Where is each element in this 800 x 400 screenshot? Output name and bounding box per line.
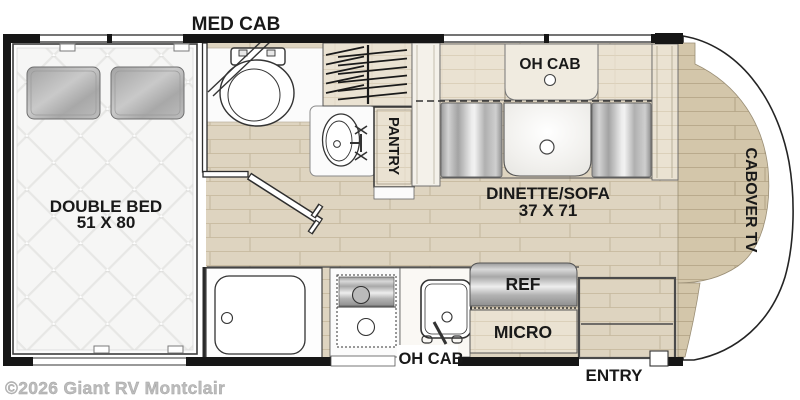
- microwave: MICRO: [470, 310, 577, 353]
- cabover-tv-label: CABOVER TV: [742, 148, 759, 253]
- floorplan-canvas: DOUBLE BED 51 X 80: [0, 0, 800, 400]
- cooktop-range: [330, 268, 400, 357]
- entry-step-box: [650, 351, 668, 366]
- cabinet-knob-icon: [545, 75, 556, 86]
- double-bed-dimensions: 51 X 80: [77, 213, 136, 232]
- cabinet-base-vent: [331, 356, 395, 366]
- left-wall: [3, 34, 11, 366]
- dinette-dimensions: 37 X 71: [519, 201, 578, 220]
- shower-drain-icon: [222, 313, 233, 324]
- bathroom-wall: [203, 43, 208, 172]
- refrigerator: REF: [470, 263, 577, 306]
- tall-cabinet: [412, 43, 440, 186]
- refrigerator-label: REF: [506, 274, 541, 294]
- bathroom-wall-stub: [203, 172, 248, 178]
- pantry-label: PANTRY: [385, 117, 401, 175]
- entry-steps: [579, 278, 675, 358]
- watermark: ©2026 Giant RV Montclair: [5, 378, 225, 398]
- entry-label: ENTRY: [586, 366, 644, 385]
- wardrobe: [323, 43, 412, 106]
- pillow: [111, 67, 184, 119]
- burner-icon: [353, 287, 370, 304]
- pantry-base-cabinet: [374, 187, 414, 199]
- kitchen-oh-cab-label: OH CAB: [398, 350, 463, 368]
- floorplan-svg: DOUBLE BED 51 X 80: [0, 0, 800, 400]
- window: [440, 34, 655, 43]
- pillow: [27, 67, 100, 119]
- table-mount-icon: [540, 140, 554, 154]
- bedroom-slideout: DOUBLE BED 51 X 80: [11, 43, 206, 356]
- sofa-cushion: [592, 103, 651, 177]
- kitchen-sink-icon: [421, 280, 471, 338]
- pantry-cabinet: PANTRY: [374, 107, 414, 199]
- kitchen-sink-unit: [400, 268, 471, 357]
- toilet-icon: [220, 48, 294, 126]
- slideout-wall: [33, 357, 186, 366]
- window: [36, 34, 187, 43]
- dinette-oh-cab-label: OH CAB: [519, 56, 580, 73]
- med-cab-label: MED CAB: [192, 14, 281, 35]
- shower: [206, 268, 322, 358]
- sofa-cushion: [441, 103, 502, 177]
- oven-handle-icon: [358, 319, 375, 336]
- sink-drain-icon: [442, 312, 452, 322]
- sofa-side-panel: [652, 44, 678, 180]
- microwave-label: MICRO: [494, 322, 552, 342]
